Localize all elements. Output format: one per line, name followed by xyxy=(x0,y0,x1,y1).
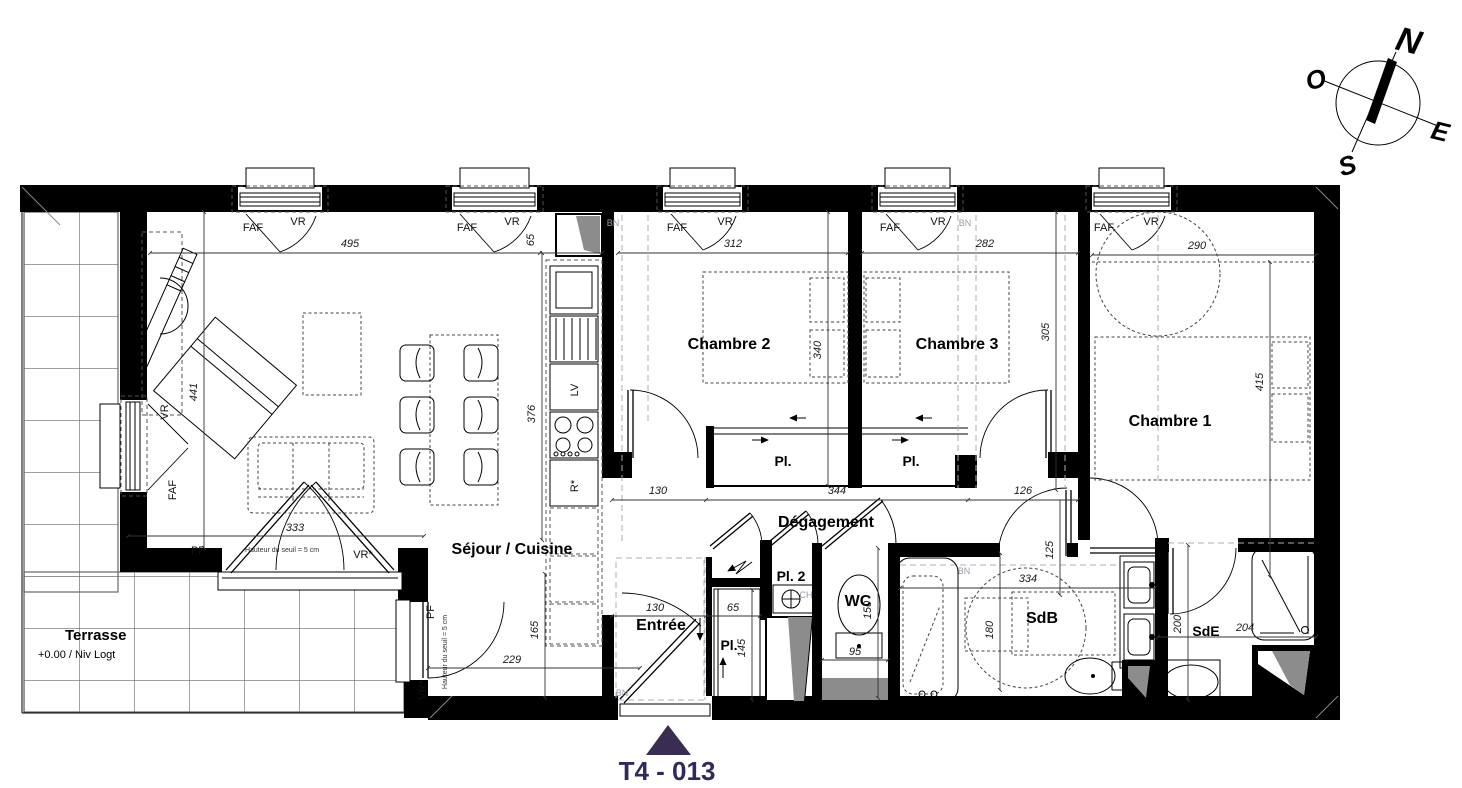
south-pf-label: PF xyxy=(425,605,437,619)
terrace-pf-door xyxy=(396,600,504,682)
room-label-pl: Pl. xyxy=(720,637,737,653)
bay-pf-label: PF xyxy=(191,545,205,557)
compass-north-label: N xyxy=(1392,20,1426,63)
kitchen-hatched-unit xyxy=(550,316,598,362)
bed-chambre-3 xyxy=(864,272,1009,383)
shaft-sdb xyxy=(1122,660,1155,703)
dim-hall-2: 344 xyxy=(828,485,846,497)
sofa xyxy=(248,437,374,513)
room-label-degagement: Dégagement xyxy=(778,514,875,531)
window4-vr-label: VR xyxy=(930,216,945,228)
south-vr-label: VR* xyxy=(417,680,429,700)
dim-sde-depth: 200 xyxy=(1172,614,1184,634)
window5-faf-label: FAF xyxy=(1094,222,1114,234)
window1-vr-label: VR xyxy=(290,216,305,228)
window4-faf-label: FAF xyxy=(880,222,900,234)
room-label-wc: WC xyxy=(845,593,872,610)
compass-rose: N O E S xyxy=(1302,20,1452,182)
bay-vr-label: VR* xyxy=(353,549,373,561)
closet-label-pl-1: Pl. xyxy=(774,453,791,469)
floor-plan-drawing: 495 65 312 282 290 441 376 165 340 305 4… xyxy=(0,0,1462,788)
cooktop xyxy=(550,412,598,458)
dim-chambre1-width: 290 xyxy=(1187,240,1207,252)
dim-chambre2-height: 340 xyxy=(812,340,824,359)
room-label-chambre-2: Chambre 2 xyxy=(688,336,771,353)
double-washbasin-sdb xyxy=(1120,556,1158,668)
dim-kitchen-width: 65 xyxy=(525,233,537,246)
dim-chambre3-height: 305 xyxy=(1040,322,1052,341)
bedroom-furniture xyxy=(703,212,1310,480)
west-window-faf-label: FAF xyxy=(167,480,179,500)
dim-chambre2-width: 312 xyxy=(724,238,742,250)
window2-faf-label: FAF xyxy=(457,222,477,234)
bay-seuil-note: Hauteur du seuil = 5 cm xyxy=(245,547,319,554)
compass-needle-icon xyxy=(1366,58,1397,124)
dishwasher-lv-label: LV xyxy=(569,383,581,396)
dim-sdb-depth: 180 xyxy=(984,620,996,639)
shaft-pl2 xyxy=(766,617,812,701)
room-label-pl2: Pl. 2 xyxy=(777,568,806,584)
window-icon xyxy=(232,168,328,252)
closet-label-pl-2: Pl. xyxy=(902,453,919,469)
dim-sdb-width: 334 xyxy=(1019,573,1037,585)
dim-sejour-south: 165 xyxy=(529,620,541,639)
side-table xyxy=(303,313,361,395)
dim-sejour-width: 495 xyxy=(341,238,360,250)
shaft-sde xyxy=(1252,645,1316,701)
room-label-entree: Entrée xyxy=(636,617,686,634)
dim-hall-4: 125 xyxy=(1044,540,1056,559)
unit-title-label: T4 - 013 xyxy=(619,756,716,786)
dim-pl-width: 65 xyxy=(727,602,740,614)
bn-label-1: BN xyxy=(607,218,620,228)
room-label-sdb: SdB xyxy=(1026,610,1058,627)
bed-chambre-1 xyxy=(1095,212,1310,480)
terrace-tiles-left xyxy=(24,212,118,592)
shower-sde xyxy=(1252,548,1316,640)
toilet-sdb xyxy=(1065,658,1125,694)
unit-title: T4 - 013 xyxy=(619,725,716,786)
room-label-sejour-cuisine: Séjour / Cuisine xyxy=(452,541,573,558)
dim-sde-width: 204 xyxy=(1235,622,1254,634)
dim-bay-width: 333 xyxy=(286,522,305,534)
room-label-terrasse: Terrasse xyxy=(65,627,126,644)
entrance-door xyxy=(618,593,712,720)
kitchen-counter xyxy=(546,214,602,646)
folding-door-arrow-icon xyxy=(728,561,752,574)
compass-west-label: O xyxy=(1302,62,1329,96)
compass-east-label: E xyxy=(1428,115,1453,148)
window5-vr-label: VR xyxy=(1143,216,1158,228)
room-label-chambre-1: Chambre 1 xyxy=(1129,413,1212,430)
dim-sejour-height: 441 xyxy=(188,383,200,401)
window3-faf-label: FAF xyxy=(667,222,687,234)
window3-vr-label: VR xyxy=(717,216,732,228)
room-label-chambre-3: Chambre 3 xyxy=(916,336,999,353)
dim-chambre1-height: 415 xyxy=(1254,372,1266,391)
dim-pl-depth: 145 xyxy=(736,638,748,657)
living-furniture xyxy=(122,232,498,513)
entrance-marker-icon xyxy=(646,725,691,755)
fridge-r-label: R* xyxy=(569,479,581,492)
dim-terrace-south: 229 xyxy=(502,654,521,666)
terrasse-level-label: +0.00 / Niv Logt xyxy=(38,649,115,661)
bn-label-2: BN xyxy=(959,218,972,228)
bn-label-4: BN xyxy=(958,566,971,576)
dim-kitchen-height: 376 xyxy=(526,404,538,423)
dim-wc-width: 95 xyxy=(849,646,862,658)
window-icon xyxy=(872,168,963,250)
bathtub xyxy=(896,558,958,702)
compass-south-label: S xyxy=(1334,148,1360,182)
room-label-sde: SdE xyxy=(1192,623,1219,639)
bed-chambre-2 xyxy=(703,272,848,383)
window1-faf-label: FAF xyxy=(243,222,263,234)
dim-hall-3: 126 xyxy=(1014,485,1033,497)
dining-set xyxy=(400,335,498,505)
water-heater-ch-label: CH xyxy=(800,590,813,600)
lounge-chair xyxy=(154,317,297,459)
west-window-vr-label: VR xyxy=(159,404,171,419)
dim-chambre3-width: 282 xyxy=(975,238,994,250)
south-seuil-note: Hauteur du seuil = 5 cm xyxy=(442,615,449,689)
window-icon xyxy=(1086,168,1177,250)
floor-plan-page: 495 65 312 282 290 441 376 165 340 305 4… xyxy=(0,0,1462,788)
kitchen-sink xyxy=(550,266,598,314)
dim-hall-1: 130 xyxy=(649,485,668,497)
window2-vr-label: VR xyxy=(504,216,519,228)
bn-label-3: BN xyxy=(616,688,629,698)
dim-entree-width: 130 xyxy=(646,602,665,614)
